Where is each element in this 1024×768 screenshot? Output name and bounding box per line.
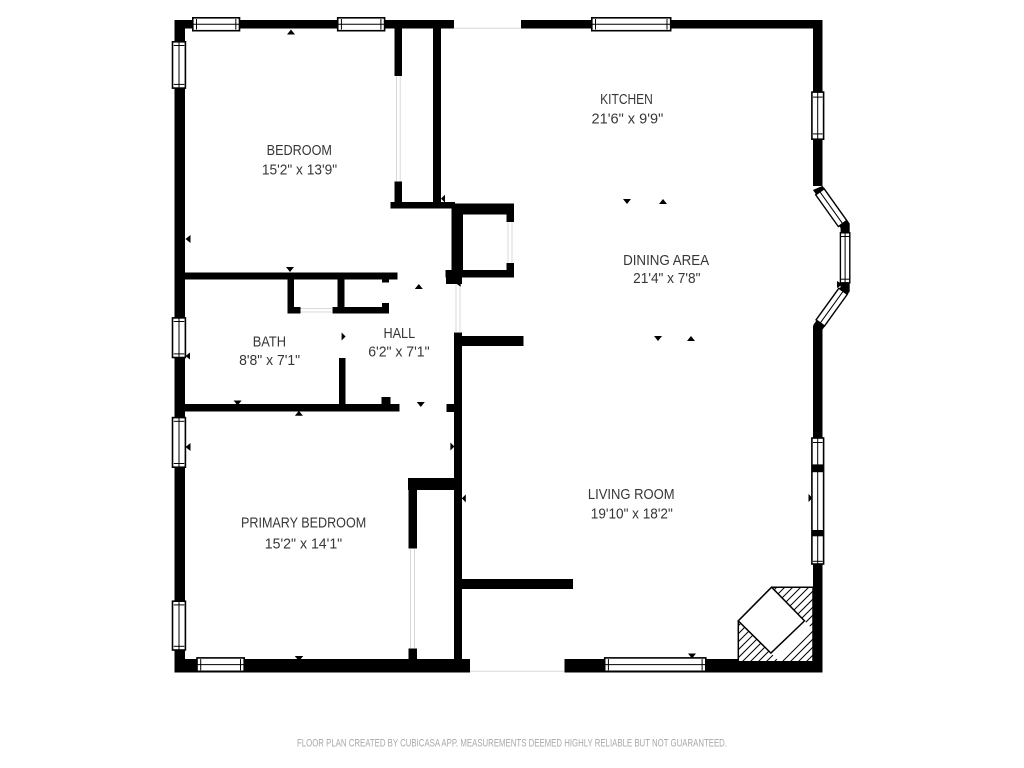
svg-text:LIVING ROOM: LIVING ROOM: [588, 487, 675, 503]
svg-text:FLOOR PLAN CREATED BY CUBICASA: FLOOR PLAN CREATED BY CUBICASA APP. MEAS…: [297, 737, 727, 749]
svg-text:KITCHEN: KITCHEN: [600, 92, 653, 108]
svg-text:6'2" x 7'1": 6'2" x 7'1": [368, 344, 429, 360]
svg-text:BEDROOM: BEDROOM: [267, 143, 332, 159]
svg-text:15'2" x 13'9": 15'2" x 13'9": [262, 163, 337, 179]
svg-text:21'4" x 7'8": 21'4" x 7'8": [633, 271, 700, 287]
svg-text:PRIMARY BEDROOM: PRIMARY BEDROOM: [241, 516, 366, 532]
svg-text:19'10" x 18'2": 19'10" x 18'2": [591, 506, 673, 522]
svg-text:8'8" x 7'1": 8'8" x 7'1": [239, 353, 300, 369]
svg-text:21'6" x 9'9": 21'6" x 9'9": [592, 112, 664, 128]
svg-text:HALL: HALL: [383, 326, 415, 342]
svg-text:15'2" x 14'1": 15'2" x 14'1": [265, 536, 342, 552]
svg-text:BATH: BATH: [253, 335, 286, 351]
svg-text:DINING AREA: DINING AREA: [623, 253, 709, 269]
